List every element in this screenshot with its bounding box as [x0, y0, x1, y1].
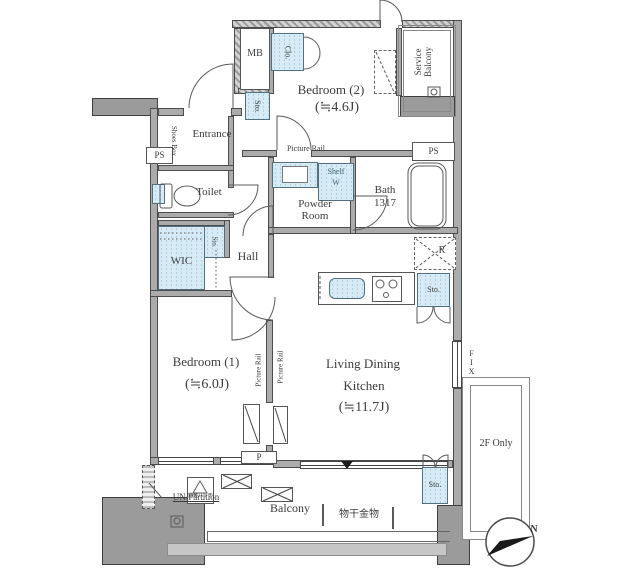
void-2f-only-inner: [470, 385, 522, 532]
wall-entrance-right: [228, 116, 234, 188]
bath-size-label: 1317: [366, 197, 404, 209]
storage-kitchen-label: Sto.: [417, 273, 450, 307]
service-balcony-door-arc: [380, 0, 402, 22]
bedroom1-window-left: [158, 457, 214, 465]
powder-label-line1: Powder: [284, 198, 346, 210]
ps-right-label: PS: [412, 142, 455, 161]
wall-top-left-segment: [232, 20, 381, 28]
wall-kitchen-top: [268, 227, 458, 234]
closet-door-arcs: [304, 37, 320, 69]
picture-rail-right-wrap: Picture Rail: [274, 333, 288, 401]
wall-hall-kitchen: [268, 234, 274, 278]
ldk-name-line2: Kitchen: [339, 379, 389, 393]
fix-window: [452, 341, 462, 388]
floor-plan: Bedroom (2) (≒4.6J) Bedroom (1) (≒6.0J) …: [0, 0, 640, 569]
picture-rail-right-label: Picture Rail: [277, 350, 285, 383]
vanity-sink: [282, 166, 308, 183]
service-balcony-line2: Balcony: [424, 47, 434, 77]
wall-bedroom1-top: [150, 290, 232, 297]
bedroom1-name: Bedroom (1): [163, 355, 249, 369]
storage-balcony-label: Sto.: [422, 467, 448, 504]
closet-label: Clo.: [283, 45, 292, 59]
fix-label: FIX: [463, 344, 475, 380]
bedroom1-area: (≒6.0J): [177, 377, 237, 392]
refrigerator-label: R: [434, 245, 450, 256]
kitchen-storage-door-arcs: [417, 307, 450, 323]
balcony-railing-left: [207, 531, 208, 542]
sliding-panel-left: [243, 404, 260, 444]
washer-label: W: [320, 179, 352, 188]
powder-label-line2: Room: [288, 210, 342, 222]
storage-hall-label-wrap: Sto.: [204, 226, 225, 258]
pipe-label: P: [241, 451, 277, 464]
toilet-label: Toilet: [190, 186, 228, 198]
shelf-label: Shelf: [320, 168, 352, 177]
balcony-railing-outer: [207, 531, 450, 532]
bathtub-outer: [408, 163, 446, 229]
laundry-hardware-label: 物干金物: [330, 509, 388, 520]
entrance-door-arc: [189, 64, 233, 108]
storage-entrance-label: Sto.: [253, 100, 262, 113]
picture-rail-left-wrap: Picture Rail: [252, 336, 266, 404]
balcony-label: Balcony: [262, 502, 318, 515]
ac-unit-right: [261, 487, 293, 502]
picture-rail-top-label: Picture Rail: [276, 145, 336, 154]
bathtub-inner: [411, 166, 443, 226]
toilet-sink: [152, 184, 165, 204]
mb-label: MB: [242, 48, 268, 59]
shoes-box-label-wrap: Shoes Box: [164, 114, 184, 168]
toilet-door-arc: [228, 185, 258, 215]
ac-unit-left: [221, 474, 252, 489]
compass-north-label: N: [527, 524, 541, 535]
sliding-panel-right: [273, 406, 288, 444]
bedroom2-name: Bedroom (2): [285, 83, 377, 97]
bedroom2-dashed-area: [374, 50, 396, 94]
wall-divider-b1-ldk-upper: [266, 320, 273, 403]
wall-entrance-top-b: [231, 108, 242, 116]
entrance-label: Entrance: [186, 128, 238, 140]
ldk-area: (≒11.7J): [332, 400, 396, 415]
meter-box: [240, 28, 270, 90]
stove: [372, 276, 402, 302]
wall-toilet-bottom: [158, 212, 234, 218]
2f-only-label: 2F Only: [468, 438, 524, 449]
storage-entrance-label-wrap: Sto.: [245, 92, 270, 120]
evacuation-hatch-label: 避難ハッチ: [188, 494, 213, 500]
balcony-railing-inner: [207, 541, 450, 542]
hall-label: Hall: [230, 250, 266, 263]
service-balcony-label: Service Balcony: [398, 30, 450, 94]
ldk-name-line1: Living Dining: [316, 357, 410, 371]
shoes-box-label: Shoes Box: [170, 126, 178, 156]
balcony-partition: [142, 465, 155, 509]
picture-rail-left-label: Picture Rail: [255, 353, 263, 386]
wall-bedroom2-bottom-a: [242, 150, 277, 157]
bath-label: Bath: [366, 184, 404, 196]
storage-hall-label: Sto.: [211, 236, 219, 247]
bedroom2-area: (≒4.6J): [303, 100, 371, 115]
kitchen-sink: [329, 278, 365, 299]
closet-label-wrap: Clo.: [271, 33, 304, 71]
pillar-top-left: [92, 98, 158, 116]
wic-label: WIC: [158, 252, 205, 270]
balcony-outer-band: [167, 543, 447, 556]
ldk-door-arc: [230, 277, 273, 320]
